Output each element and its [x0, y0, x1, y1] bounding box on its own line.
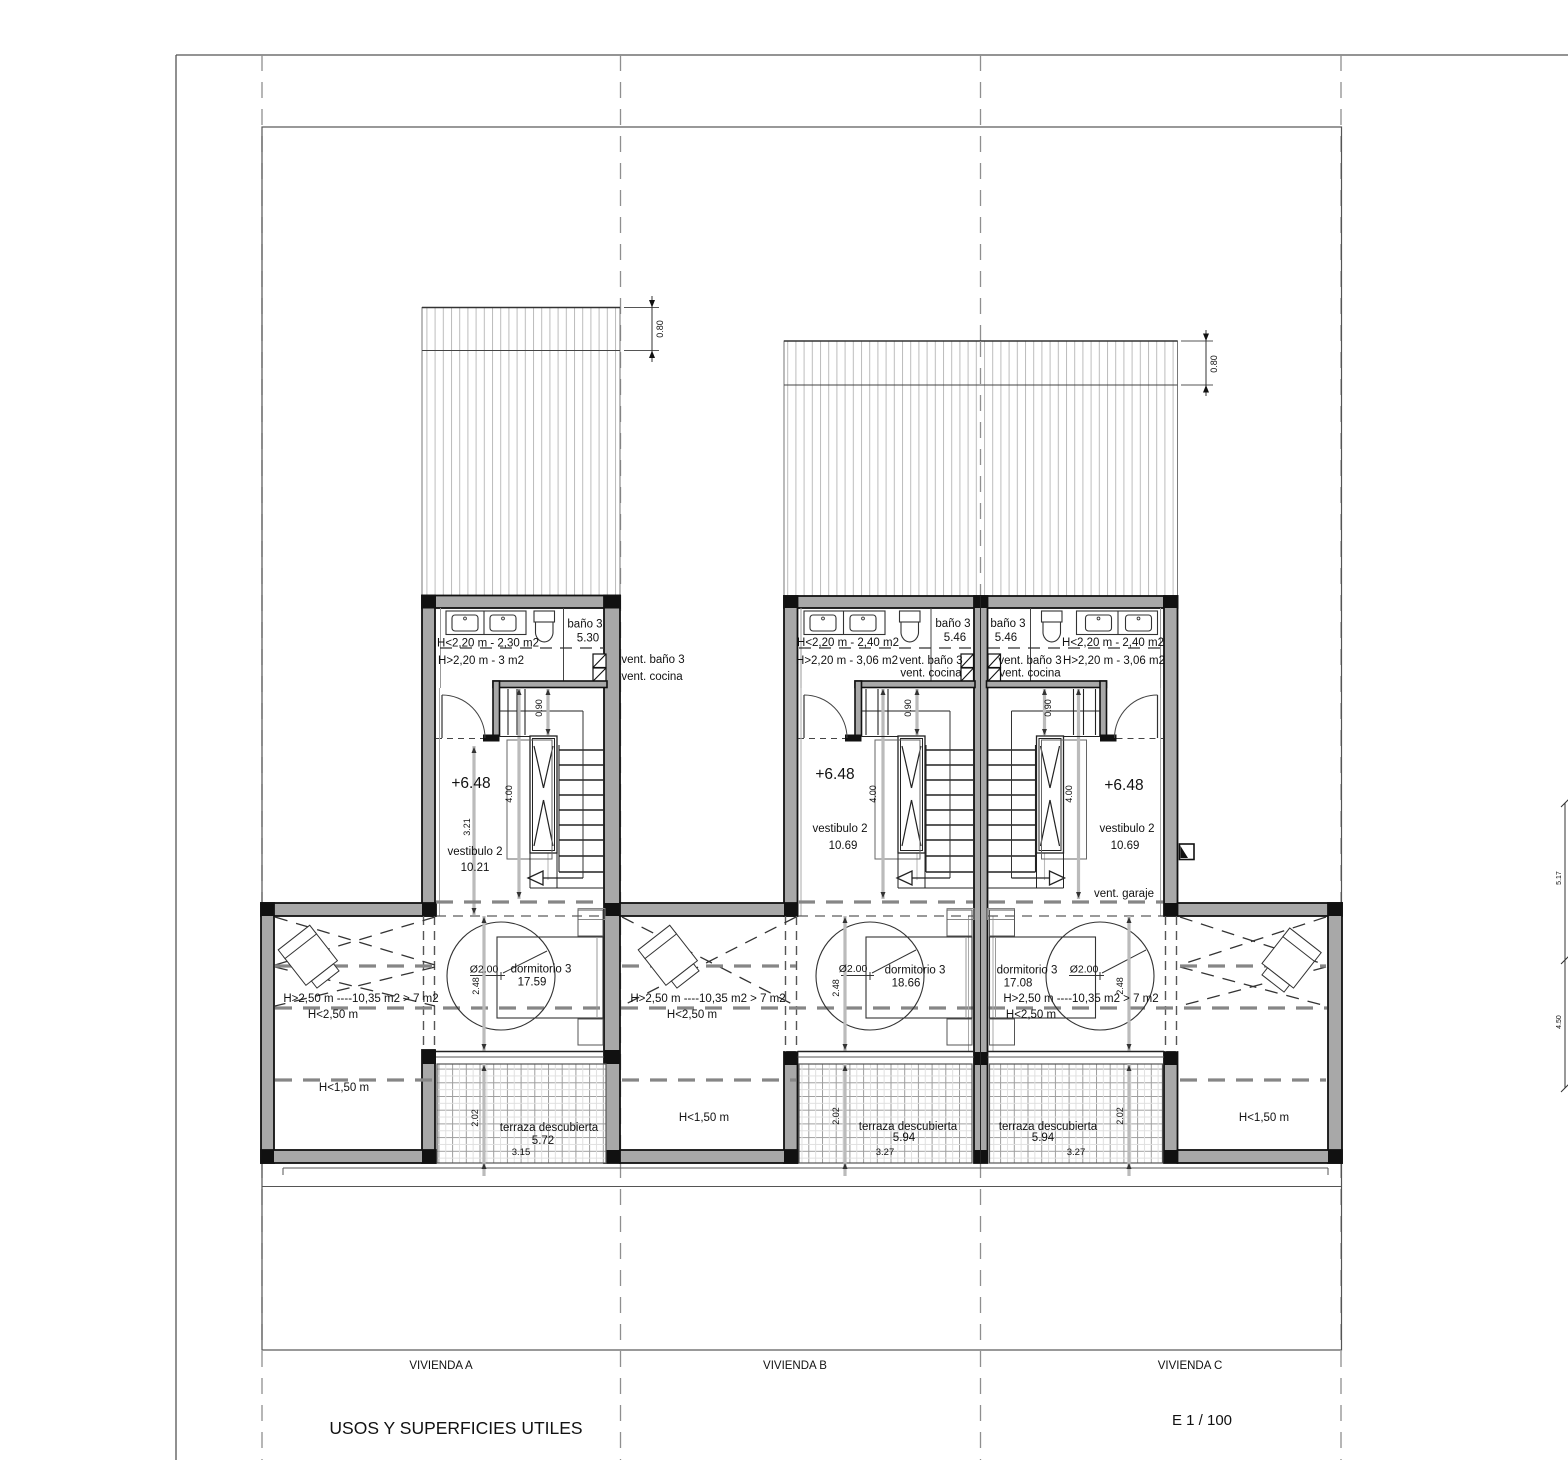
svg-text:0.90: 0.90 — [1043, 699, 1053, 717]
svg-text:4.00: 4.00 — [1064, 785, 1074, 803]
svg-text:5.17: 5.17 — [1556, 871, 1563, 885]
svg-text:10.69: 10.69 — [829, 840, 858, 852]
svg-text:2.48: 2.48 — [831, 979, 841, 997]
svg-text:VIVIENDA A: VIVIENDA A — [409, 1360, 473, 1372]
svg-text:0.80: 0.80 — [655, 320, 665, 338]
svg-text:vent. garaje: vent. garaje — [1094, 888, 1154, 900]
svg-text:3.27: 3.27 — [1067, 1147, 1086, 1158]
svg-text:dormitorio 3: dormitorio 3 — [997, 965, 1058, 977]
svg-text:H>2,20 m - 3 m2: H>2,20 m - 3 m2 — [438, 655, 524, 667]
svg-text:H<2,20 m - 2,30 m2: H<2,20 m - 2,30 m2 — [437, 638, 539, 650]
svg-text:17.59: 17.59 — [518, 977, 547, 989]
svg-text:2.02: 2.02 — [1115, 1107, 1125, 1125]
svg-text:terraza descubierta: terraza descubierta — [500, 1122, 599, 1134]
svg-text:2.48: 2.48 — [471, 977, 481, 995]
svg-text:Ø2.00: Ø2.00 — [839, 963, 868, 975]
svg-text:H<1,50 m: H<1,50 m — [679, 1112, 729, 1124]
svg-text:H<2,20 m - 2,40 m2: H<2,20 m - 2,40 m2 — [797, 637, 899, 649]
svg-text:baño 3: baño 3 — [935, 618, 970, 630]
svg-text:H<2,50 m: H<2,50 m — [667, 1009, 717, 1021]
svg-text:18.66: 18.66 — [892, 978, 921, 990]
svg-text:H>2,50 m ----10,35 m2 > 7 m2: H>2,50 m ----10,35 m2 > 7 m2 — [283, 993, 438, 1005]
svg-text:5.94: 5.94 — [893, 1132, 916, 1144]
svg-text:H>2,50 m ----10,35 m2 > 7 m2: H>2,50 m ----10,35 m2 > 7 m2 — [1003, 993, 1158, 1005]
svg-text:dormitorio 3: dormitorio 3 — [511, 964, 572, 976]
svg-text:baño 3: baño 3 — [990, 618, 1025, 630]
svg-text:H<2,20 m - 2,40 m2: H<2,20 m - 2,40 m2 — [1062, 637, 1164, 649]
svg-text:0.80: 0.80 — [1209, 355, 1219, 373]
svg-text:5.46: 5.46 — [944, 632, 966, 644]
svg-text:vestibulo 2: vestibulo 2 — [1100, 823, 1155, 835]
svg-text:3.15: 3.15 — [512, 1147, 531, 1158]
svg-text:H<2,50 m: H<2,50 m — [1006, 1009, 1056, 1021]
svg-text:10.69: 10.69 — [1111, 840, 1140, 852]
svg-text:H<1,50 m: H<1,50 m — [319, 1082, 369, 1094]
svg-text:5.72: 5.72 — [532, 1135, 554, 1147]
svg-text:4.50: 4.50 — [1556, 1015, 1563, 1029]
svg-text:4.00: 4.00 — [504, 785, 514, 803]
svg-text:vent. cocina: vent. cocina — [999, 668, 1061, 680]
svg-text:vestibulo 2: vestibulo 2 — [448, 846, 503, 858]
svg-text:0.90: 0.90 — [534, 699, 544, 717]
svg-text:VIVIENDA C: VIVIENDA C — [1158, 1360, 1223, 1372]
svg-text:5.30: 5.30 — [577, 633, 599, 645]
svg-text:VIVIENDA B: VIVIENDA B — [763, 1360, 827, 1372]
svg-text:10.21: 10.21 — [461, 862, 490, 874]
svg-text:baño 3: baño 3 — [567, 619, 602, 631]
svg-text:2.02: 2.02 — [831, 1107, 841, 1125]
svg-text:vent. baño 3: vent. baño 3 — [998, 655, 1061, 667]
svg-text:vent. cocina: vent. cocina — [621, 671, 683, 683]
svg-text:Ø2.00: Ø2.00 — [470, 964, 499, 976]
svg-text:dormitorio 3: dormitorio 3 — [885, 965, 946, 977]
svg-text:3.27: 3.27 — [876, 1147, 895, 1158]
svg-text:E 1 / 100: E 1 / 100 — [1172, 1412, 1232, 1429]
svg-text:USOS Y SUPERFICIES UTILES: USOS Y SUPERFICIES UTILES — [329, 1418, 582, 1438]
svg-text:+6.48: +6.48 — [815, 766, 854, 783]
svg-text:4.00: 4.00 — [868, 785, 878, 803]
svg-text:Ø2.00: Ø2.00 — [1070, 964, 1099, 976]
svg-text:5.46: 5.46 — [995, 632, 1017, 644]
svg-text:H>2,20 m - 3,06 m2: H>2,20 m - 3,06 m2 — [1063, 655, 1165, 667]
svg-text:0.90: 0.90 — [903, 699, 913, 717]
svg-text:vent. baño 3: vent. baño 3 — [621, 654, 684, 666]
svg-text:vent. baño 3: vent. baño 3 — [899, 655, 962, 667]
svg-text:+6.48: +6.48 — [1104, 777, 1143, 794]
svg-text:vent. cocina: vent. cocina — [900, 668, 962, 680]
svg-text:H<2,50 m: H<2,50 m — [308, 1009, 358, 1021]
svg-text:vestibulo 2: vestibulo 2 — [813, 823, 868, 835]
svg-text:5.94: 5.94 — [1032, 1132, 1055, 1144]
svg-text:2.02: 2.02 — [470, 1109, 480, 1127]
svg-text:H<1,50 m: H<1,50 m — [1239, 1112, 1289, 1124]
svg-text:17.08: 17.08 — [1004, 978, 1033, 990]
svg-text:3.21: 3.21 — [462, 818, 472, 836]
svg-text:H>2,50 m ----10,35 m2 > 7 m2: H>2,50 m ----10,35 m2 > 7 m2 — [630, 993, 785, 1005]
svg-text:+6.48: +6.48 — [451, 775, 490, 792]
svg-text:H>2,20 m - 3,06 m2: H>2,20 m - 3,06 m2 — [796, 655, 898, 667]
